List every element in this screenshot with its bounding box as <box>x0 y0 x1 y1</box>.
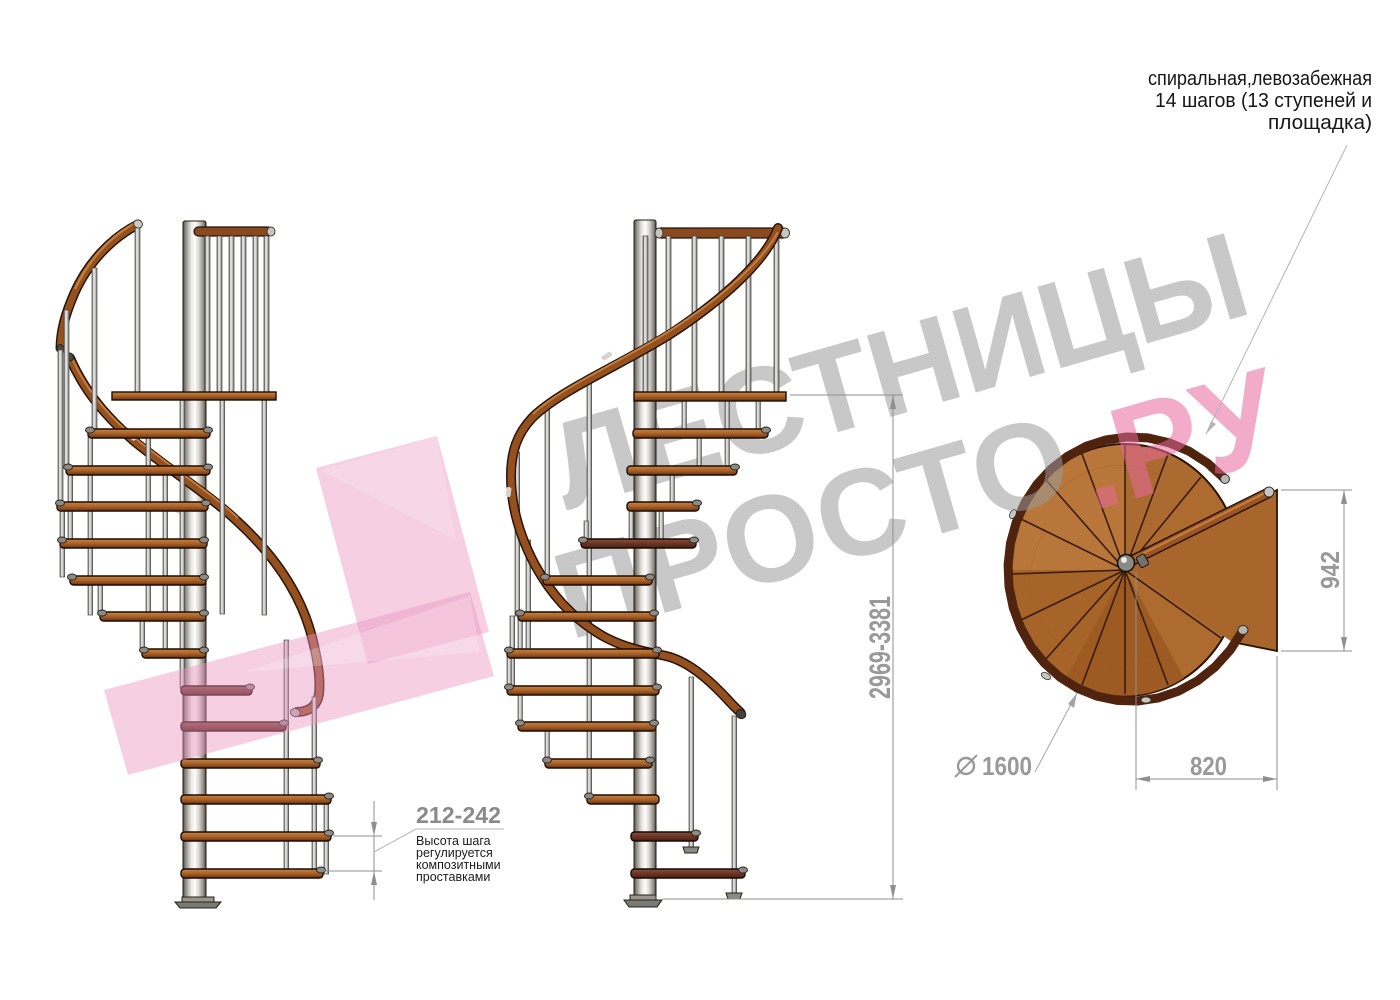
svg-text:212-242: 212-242 <box>416 802 501 828</box>
svg-text:площадка): площадка) <box>1268 112 1372 134</box>
svg-text:820: 820 <box>1190 751 1227 781</box>
svg-text:2969-3381: 2969-3381 <box>864 596 897 699</box>
svg-text:проставками: проставками <box>416 870 490 884</box>
svg-text:942: 942 <box>1315 551 1345 589</box>
svg-text:1600: 1600 <box>982 751 1032 781</box>
svg-text:спиральная,левозабежная: спиральная,левозабежная <box>1148 68 1372 90</box>
svg-text:14 шагов (13 ступеней и: 14 шагов (13 ступеней и <box>1155 90 1372 112</box>
